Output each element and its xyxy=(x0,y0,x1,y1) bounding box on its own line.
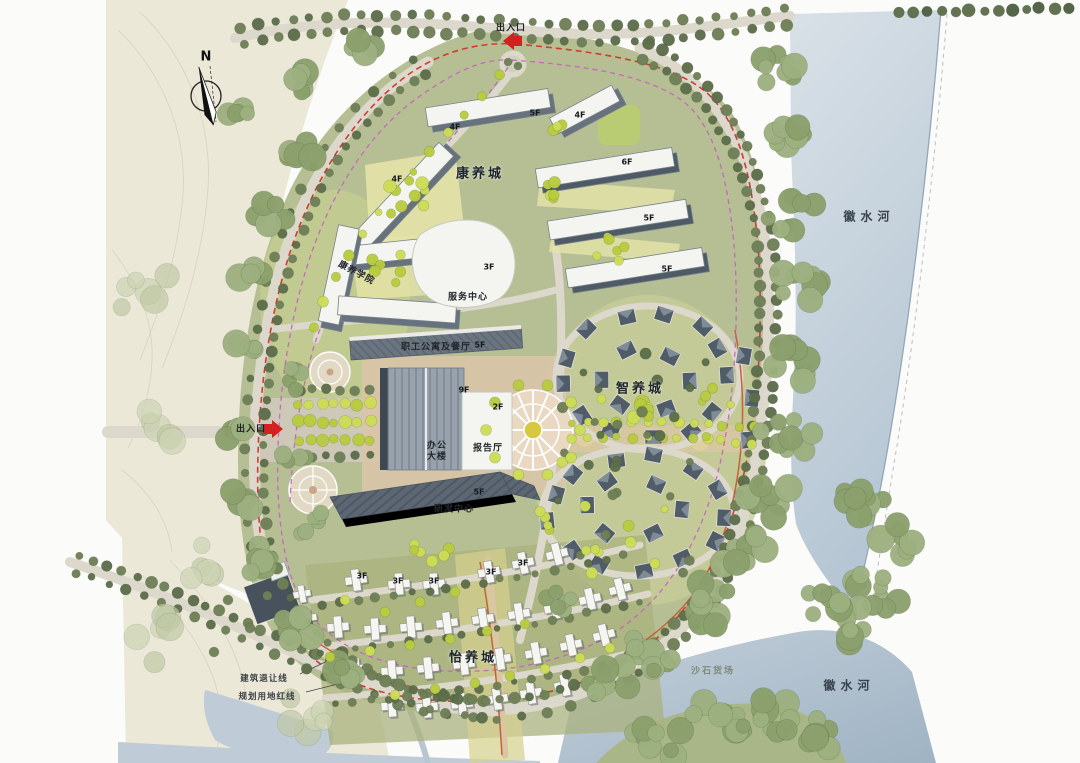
tree xyxy=(89,557,98,566)
tree xyxy=(277,578,289,590)
tree xyxy=(610,36,620,46)
tree xyxy=(395,266,406,277)
tree xyxy=(221,626,230,635)
tree xyxy=(553,122,562,131)
tree xyxy=(980,7,989,16)
tree xyxy=(410,76,420,86)
tree xyxy=(642,37,654,49)
tree xyxy=(548,616,557,625)
tree xyxy=(274,446,292,464)
tree xyxy=(719,583,735,599)
tree xyxy=(206,620,215,629)
tree xyxy=(306,435,316,445)
tree xyxy=(340,398,351,409)
tree xyxy=(583,434,591,442)
tree xyxy=(366,415,377,426)
tree xyxy=(691,589,710,608)
tree xyxy=(445,634,455,644)
tree xyxy=(759,60,773,74)
tree xyxy=(258,488,269,499)
tree xyxy=(801,724,828,751)
tree xyxy=(352,417,362,427)
tree xyxy=(708,703,732,727)
tree xyxy=(549,585,564,600)
tree xyxy=(253,325,262,334)
tree xyxy=(396,250,406,260)
tree xyxy=(295,437,304,446)
tree xyxy=(730,514,741,525)
tree xyxy=(335,386,344,395)
tree xyxy=(525,692,534,701)
tree xyxy=(315,713,332,730)
tree xyxy=(582,608,591,617)
tree xyxy=(402,691,412,701)
tree xyxy=(775,474,803,502)
tree xyxy=(409,190,421,202)
tree xyxy=(276,301,284,309)
tree xyxy=(626,639,644,657)
tree xyxy=(454,685,463,694)
tree xyxy=(301,663,312,674)
tree xyxy=(72,569,81,578)
tree xyxy=(649,61,658,70)
tree xyxy=(260,518,272,530)
tree xyxy=(494,625,500,631)
tree xyxy=(334,452,345,463)
tree xyxy=(426,705,434,713)
tree xyxy=(663,743,678,758)
tree xyxy=(386,209,396,219)
tree xyxy=(554,497,561,504)
tree xyxy=(767,238,779,250)
tree xyxy=(591,418,599,426)
tree xyxy=(567,434,577,444)
tree xyxy=(333,155,343,165)
tree xyxy=(279,629,301,651)
tree xyxy=(229,613,239,623)
tree xyxy=(292,241,300,249)
tree xyxy=(527,34,537,44)
tree xyxy=(758,73,776,91)
tree xyxy=(692,92,703,103)
tree xyxy=(145,576,157,588)
tree xyxy=(775,285,790,300)
tree xyxy=(188,595,199,606)
tree xyxy=(681,632,691,642)
tree xyxy=(504,58,512,66)
tree xyxy=(666,492,674,500)
tree xyxy=(387,641,394,648)
tree xyxy=(640,348,651,359)
tree xyxy=(317,183,327,193)
tree xyxy=(340,595,350,605)
tree xyxy=(140,591,148,599)
tree xyxy=(1022,5,1031,14)
tree xyxy=(144,651,165,672)
tree xyxy=(682,62,693,73)
tree xyxy=(424,635,432,643)
tree xyxy=(391,25,401,35)
tree xyxy=(752,423,769,440)
tree xyxy=(754,280,766,292)
tree xyxy=(737,131,745,139)
site-plan: N 出入口 出入口 康养城 智养城 怡养城 康养学院 服务中心 职工公寓及餐厅 … xyxy=(0,0,1080,763)
tree xyxy=(730,12,738,20)
tree xyxy=(636,599,642,605)
tree xyxy=(156,613,184,641)
tree xyxy=(772,220,790,238)
tree xyxy=(379,675,391,687)
villa-house xyxy=(719,366,734,384)
tree xyxy=(242,563,260,581)
tree xyxy=(101,561,112,572)
tree xyxy=(461,711,469,719)
tree xyxy=(579,666,589,676)
tree xyxy=(773,310,783,320)
tree xyxy=(295,184,306,195)
tree xyxy=(366,451,374,459)
tree xyxy=(937,6,947,16)
tree xyxy=(298,143,326,171)
tree xyxy=(549,176,561,188)
tree xyxy=(686,458,693,465)
tree xyxy=(438,550,449,561)
tree xyxy=(741,186,752,197)
tree xyxy=(608,490,618,500)
tree xyxy=(257,300,268,311)
tree xyxy=(604,234,615,245)
tree xyxy=(180,567,202,589)
tree xyxy=(875,570,891,586)
tree xyxy=(578,20,589,31)
tree xyxy=(543,34,553,44)
tree xyxy=(309,323,318,332)
tree xyxy=(702,358,710,366)
tree xyxy=(745,526,766,547)
tree xyxy=(535,506,545,516)
tree xyxy=(444,128,453,137)
tree xyxy=(781,19,793,31)
tree xyxy=(363,119,371,127)
tree xyxy=(593,20,605,32)
tree xyxy=(550,566,560,576)
tree xyxy=(780,4,789,13)
tree xyxy=(274,32,283,41)
tree xyxy=(322,452,330,460)
tree xyxy=(708,116,717,125)
tree xyxy=(494,14,505,25)
tree xyxy=(369,265,381,277)
tree xyxy=(545,20,554,29)
tree xyxy=(797,287,822,312)
tree xyxy=(695,30,706,41)
tree xyxy=(247,375,254,382)
tree xyxy=(482,626,492,636)
tree xyxy=(661,628,669,636)
tree xyxy=(628,434,638,444)
tree xyxy=(481,697,490,706)
tree xyxy=(278,284,288,294)
tree xyxy=(657,417,666,426)
tree xyxy=(513,469,524,480)
tree xyxy=(595,39,603,47)
tree xyxy=(155,263,180,288)
tree xyxy=(580,369,587,376)
tree xyxy=(304,400,314,410)
tree xyxy=(690,419,699,428)
tree xyxy=(298,523,314,539)
tree xyxy=(727,401,735,409)
tree xyxy=(458,631,466,639)
tree xyxy=(317,417,329,429)
tree xyxy=(605,643,615,653)
tree xyxy=(481,425,492,436)
tree xyxy=(351,451,360,460)
tree xyxy=(542,469,553,480)
tree xyxy=(339,416,352,429)
tree xyxy=(489,397,500,408)
tree xyxy=(532,571,539,578)
tree xyxy=(461,580,470,589)
tree xyxy=(194,537,211,554)
tree xyxy=(490,30,501,41)
tree xyxy=(209,647,219,657)
tree xyxy=(461,14,469,22)
tree xyxy=(527,675,536,684)
tree xyxy=(474,28,485,39)
tree xyxy=(423,26,435,38)
tree xyxy=(714,126,723,135)
tree xyxy=(321,12,332,23)
tree xyxy=(761,198,769,206)
tree xyxy=(287,658,294,665)
tree xyxy=(778,426,803,451)
tree xyxy=(350,386,360,396)
tree xyxy=(457,27,467,37)
tree xyxy=(648,725,665,742)
tree xyxy=(581,546,591,556)
tree xyxy=(338,9,350,21)
tree xyxy=(619,601,629,611)
tree xyxy=(728,147,740,159)
tree xyxy=(753,711,769,727)
tree xyxy=(776,719,797,740)
tree xyxy=(540,664,550,674)
tree xyxy=(550,599,566,615)
tree xyxy=(745,450,753,458)
tree xyxy=(371,10,383,22)
tree xyxy=(450,587,460,597)
tree xyxy=(134,573,142,581)
tree xyxy=(667,638,679,650)
tree xyxy=(240,444,251,455)
tree xyxy=(716,435,725,444)
tree xyxy=(756,184,765,193)
tree xyxy=(313,505,329,521)
tree xyxy=(264,379,274,389)
tree xyxy=(565,700,576,711)
tree xyxy=(113,298,130,315)
tree xyxy=(353,434,365,446)
villa-house xyxy=(736,346,753,365)
tree xyxy=(717,421,727,431)
tree xyxy=(568,679,580,691)
tree xyxy=(358,230,366,238)
tree xyxy=(711,92,722,103)
tree xyxy=(256,643,263,650)
tree xyxy=(684,555,694,565)
tree xyxy=(661,649,681,669)
tree xyxy=(514,574,521,581)
tree xyxy=(283,268,294,279)
tree xyxy=(272,315,282,325)
tree xyxy=(754,324,763,333)
tree xyxy=(770,323,781,334)
tree xyxy=(703,613,727,637)
tree xyxy=(813,584,832,603)
tree xyxy=(390,690,400,700)
tree xyxy=(391,278,400,287)
tree xyxy=(790,368,815,393)
garden-circle-south xyxy=(289,466,337,514)
tree xyxy=(1033,2,1045,14)
tree xyxy=(751,365,763,377)
tree xyxy=(753,336,763,346)
tree xyxy=(615,674,640,699)
tree xyxy=(305,13,313,21)
tree xyxy=(781,53,807,79)
tree xyxy=(240,106,255,121)
tree xyxy=(619,550,627,558)
tree xyxy=(259,473,268,482)
tree xyxy=(894,7,905,18)
tree xyxy=(409,56,417,64)
tree xyxy=(352,645,358,651)
tree xyxy=(852,566,870,584)
tree xyxy=(654,430,665,441)
tree xyxy=(745,200,755,210)
tree xyxy=(323,27,333,37)
tree xyxy=(513,380,524,391)
tree xyxy=(693,72,701,80)
tree xyxy=(375,209,382,216)
tree xyxy=(460,111,469,120)
villa-house xyxy=(556,375,570,392)
tree xyxy=(354,596,363,605)
tree xyxy=(712,12,721,21)
tree xyxy=(723,549,750,576)
tree xyxy=(628,20,640,32)
tree xyxy=(265,363,275,373)
tree xyxy=(292,414,305,427)
tree xyxy=(520,619,530,629)
tree xyxy=(88,573,95,580)
tree xyxy=(317,398,328,409)
tree xyxy=(201,602,209,610)
tree xyxy=(495,695,503,703)
tree xyxy=(351,399,363,411)
tree xyxy=(792,262,814,284)
tree xyxy=(477,92,486,101)
villa-house xyxy=(674,500,690,518)
tree xyxy=(267,196,284,213)
tree xyxy=(307,29,317,39)
tree xyxy=(749,392,760,403)
tree xyxy=(383,94,394,105)
tree xyxy=(577,37,587,47)
tree xyxy=(440,688,446,694)
tree xyxy=(625,537,636,548)
building-office-tower xyxy=(380,368,464,470)
tree xyxy=(120,584,131,595)
tree xyxy=(759,450,769,460)
tree xyxy=(420,69,431,80)
tree xyxy=(213,605,224,616)
tree xyxy=(595,385,603,393)
tree xyxy=(761,211,776,226)
tree xyxy=(637,406,648,417)
tree xyxy=(231,417,255,441)
tree xyxy=(489,452,500,463)
tree xyxy=(736,719,750,733)
tree xyxy=(673,434,681,442)
tree xyxy=(288,382,303,397)
tree xyxy=(426,588,434,596)
tree xyxy=(352,131,361,140)
tree xyxy=(544,521,553,530)
tree xyxy=(137,399,162,424)
tree xyxy=(240,40,249,49)
tree xyxy=(596,431,604,439)
tree xyxy=(747,9,755,17)
site-plan-canvas xyxy=(0,0,1080,763)
tree xyxy=(601,603,611,613)
tree xyxy=(623,520,634,531)
tree xyxy=(613,420,623,430)
tree xyxy=(159,582,169,592)
tree xyxy=(467,694,477,704)
tree xyxy=(514,624,520,630)
tree xyxy=(380,607,390,617)
tree xyxy=(410,169,417,176)
tree xyxy=(496,575,504,583)
tree xyxy=(559,18,571,30)
tree xyxy=(128,272,145,289)
tree xyxy=(793,194,811,212)
tree xyxy=(430,684,440,694)
tree xyxy=(712,28,724,40)
tree xyxy=(560,37,569,46)
tree xyxy=(304,212,313,221)
tree xyxy=(289,15,298,24)
tree xyxy=(529,18,537,26)
tree xyxy=(751,169,763,181)
tree xyxy=(310,197,320,207)
tree xyxy=(993,5,1004,16)
tree xyxy=(679,33,688,42)
tree xyxy=(652,375,663,386)
tree xyxy=(907,7,918,18)
tree xyxy=(656,44,668,56)
tree xyxy=(393,679,405,691)
tree xyxy=(288,29,300,41)
tree xyxy=(721,104,733,116)
tree xyxy=(405,176,414,185)
tree xyxy=(367,670,377,680)
tree xyxy=(761,7,770,16)
tree xyxy=(409,588,416,595)
tree xyxy=(566,397,577,408)
